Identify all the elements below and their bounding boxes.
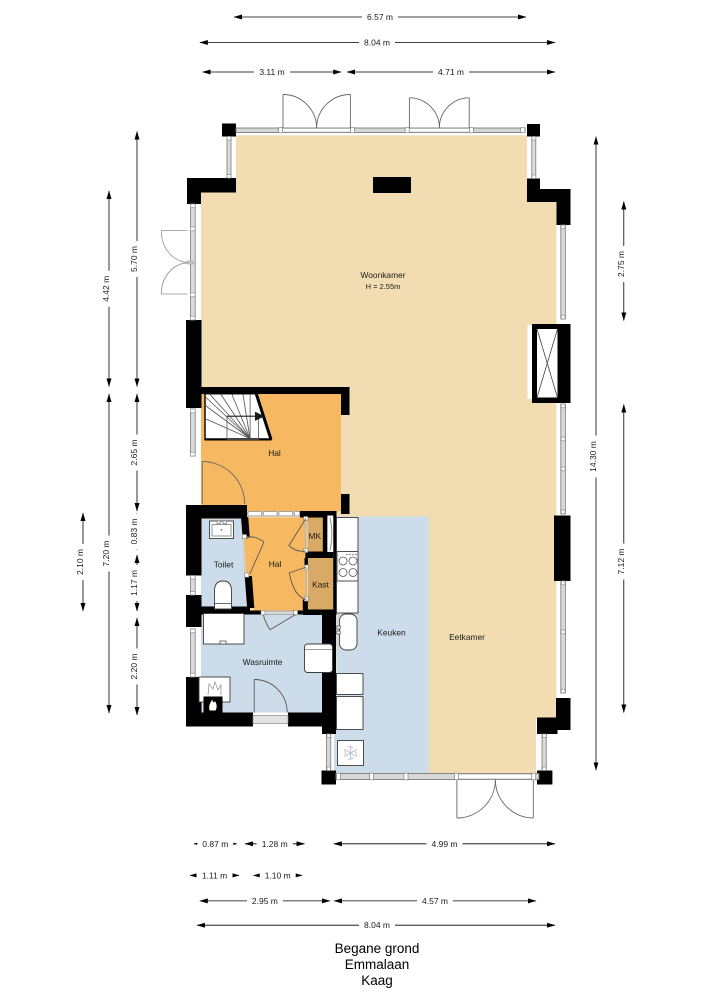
svg-text:2.95 m: 2.95 m — [252, 896, 278, 906]
svg-text:6.57 m: 6.57 m — [367, 12, 393, 22]
svg-text:2.75 m: 2.75 m — [616, 251, 626, 277]
svg-text:Keuken: Keuken — [377, 628, 406, 638]
svg-text:MK: MK — [309, 531, 322, 541]
svg-text:3.11 m: 3.11 m — [259, 67, 284, 77]
svg-text:0.83 m: 0.83 m — [129, 519, 139, 545]
svg-text:Wasruimte: Wasruimte — [243, 657, 283, 667]
svg-text:1.28 m: 1.28 m — [262, 839, 288, 849]
svg-text:4.99 m: 4.99 m — [432, 839, 458, 849]
svg-text:Hal: Hal — [268, 448, 281, 458]
svg-text:14.30 m: 14.30 m — [588, 441, 598, 472]
svg-text:H = 2.55m: H = 2.55m — [366, 282, 401, 291]
svg-text:Begane grond: Begane grond — [335, 941, 420, 956]
svg-text:5.70 m: 5.70 m — [129, 246, 139, 272]
svg-text:4.42 m: 4.42 m — [101, 276, 111, 302]
svg-text:7.20 m: 7.20 m — [101, 541, 111, 567]
svg-text:7.12 m: 7.12 m — [616, 549, 626, 575]
svg-text:Woonkamer: Woonkamer — [361, 270, 406, 280]
svg-text:2.10 m: 2.10 m — [75, 549, 85, 575]
svg-text:Kaag: Kaag — [361, 973, 393, 988]
svg-text:4.57 m: 4.57 m — [422, 896, 448, 906]
svg-text:1.10 m: 1.10 m — [265, 870, 291, 880]
svg-text:1.17 m: 1.17 m — [129, 570, 139, 596]
svg-text:4.71 m: 4.71 m — [438, 67, 464, 77]
svg-text:Emmalaan: Emmalaan — [345, 957, 410, 972]
svg-text:Toilet: Toilet — [214, 560, 234, 570]
svg-text:Kast: Kast — [312, 580, 329, 590]
svg-text:2.20 m: 2.20 m — [129, 654, 139, 680]
svg-text:2.65 m: 2.65 m — [129, 440, 139, 466]
svg-text:0.87 m: 0.87 m — [202, 839, 228, 849]
svg-text:8.04 m: 8.04 m — [364, 38, 390, 48]
svg-text:1.11 m: 1.11 m — [202, 870, 227, 880]
svg-text:Eetkamer: Eetkamer — [449, 632, 485, 642]
svg-text:8.04 m: 8.04 m — [364, 920, 390, 930]
svg-text:Hal: Hal — [269, 559, 282, 569]
